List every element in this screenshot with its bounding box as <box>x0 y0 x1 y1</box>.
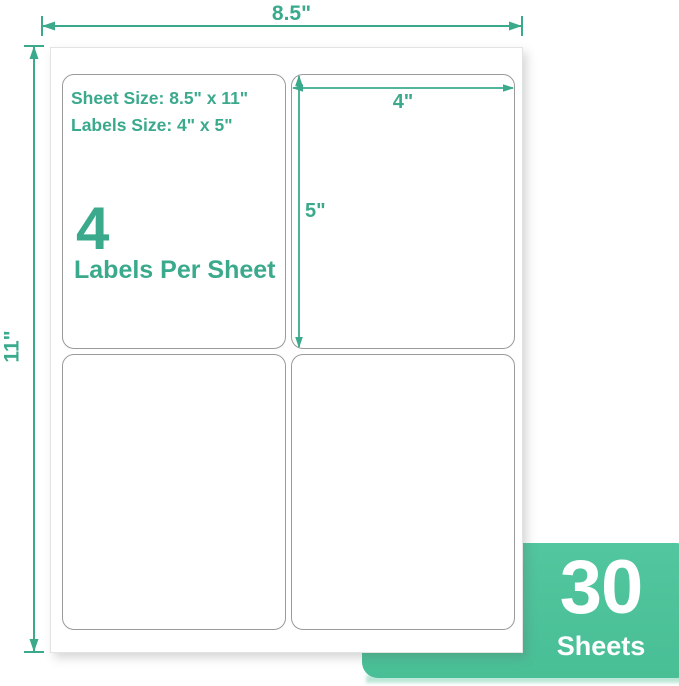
labels-per-sheet-count: 4 <box>76 201 109 257</box>
labels-per-sheet-caption: Labels Per Sheet <box>74 256 275 284</box>
sheet-width-arrow-icon <box>34 16 525 38</box>
sheet-height-arrow-icon <box>22 42 48 656</box>
label-sheet: Sheet Size: 8.5" x 11" Labels Size: 4" x… <box>50 47 523 653</box>
badge-unit: Sheets <box>523 631 679 661</box>
label-height-value: 5" <box>305 201 326 221</box>
label-bottom-right <box>291 354 515 630</box>
badge-count: 30 <box>523 553 679 623</box>
label-bottom-left <box>62 354 286 630</box>
sheet-size-text: Sheet Size: 8.5" x 11" <box>71 85 248 112</box>
label-sheet-product-image: 30 Sheets Sheet Size: 8.5" x 11" Labels … <box>0 0 679 686</box>
sheet-height-dimension: 11" <box>22 42 48 656</box>
label-top-left: Sheet Size: 8.5" x 11" Labels Size: 4" x… <box>62 74 286 349</box>
badge-text-group: 30 Sheets <box>523 553 679 661</box>
spec-lines: Sheet Size: 8.5" x 11" Labels Size: 4" x… <box>71 85 248 139</box>
sheet-height-value: 11" <box>2 315 23 379</box>
label-top-right: 4" 5" <box>291 74 515 349</box>
sheet-width-dimension: 8.5" <box>34 12 529 42</box>
labels-size-text: Labels Size: 4" x 5" <box>71 112 248 139</box>
label-width-value: 4" <box>292 92 514 112</box>
